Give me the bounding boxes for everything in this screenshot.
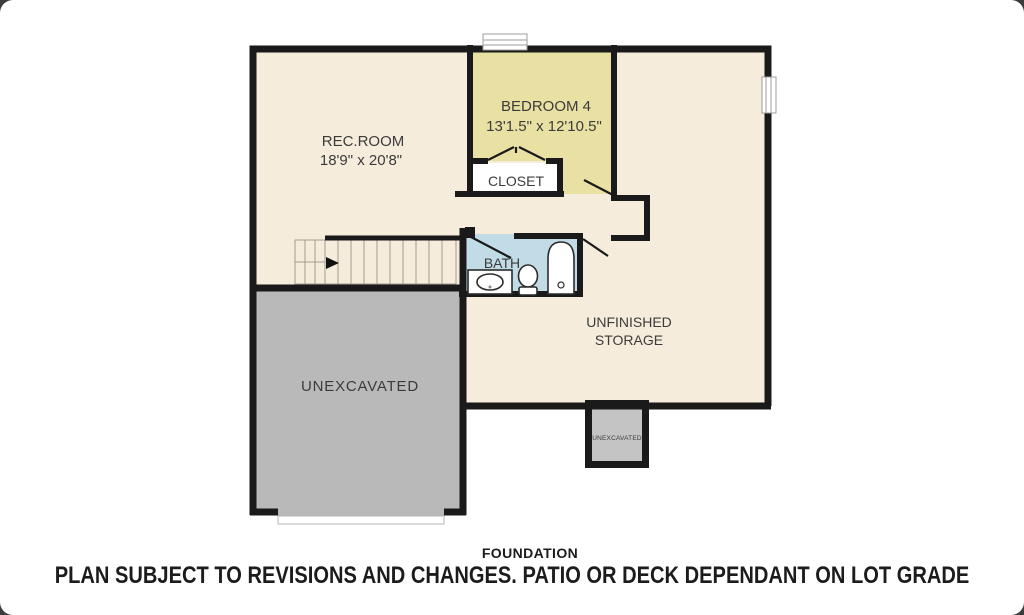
bath-vanity-sink <box>468 270 512 294</box>
bath-door-hinge-stub <box>465 227 475 238</box>
storage-label-line2: STORAGE <box>595 332 663 348</box>
window-right-wall <box>762 77 776 113</box>
floorplan-drawing: REC.ROOM 18'9" x 20'8" BEDROOM 4 13'1.5"… <box>0 0 1024 615</box>
screenshot-frame: REC.ROOM 18'9" x 20'8" BEDROOM 4 13'1.5"… <box>0 0 1024 615</box>
bath-toilet <box>519 265 538 295</box>
window-top-wall <box>483 34 527 50</box>
unexcavated-small-label: UNEXCAVATED <box>592 435 642 442</box>
bath-label: BATH <box>484 255 520 271</box>
plan-level-title: FOUNDATION <box>482 545 578 561</box>
unexcavated-main-floor <box>256 291 463 512</box>
bath-tub <box>548 242 574 294</box>
storage-label-line1: UNFINISHED <box>586 314 672 330</box>
closet-label: CLOSET <box>488 173 544 189</box>
rec-room-dims: 18'9" x 20'8" <box>320 152 402 169</box>
unexcavated-main-floor-tongue <box>278 505 444 516</box>
bedroom4-label: BEDROOM 4 <box>501 98 591 115</box>
unexcavated-main-label: UNEXCAVATED <box>301 378 419 395</box>
unexcavated-opening-strip <box>278 516 444 524</box>
bedroom4-dims: 13'1.5" x 12'10.5" <box>486 118 602 135</box>
rec-room-label: REC.ROOM <box>322 133 405 150</box>
plan-disclaimer-text: PLAN SUBJECT TO REVISIONS AND CHANGES. P… <box>55 562 970 590</box>
